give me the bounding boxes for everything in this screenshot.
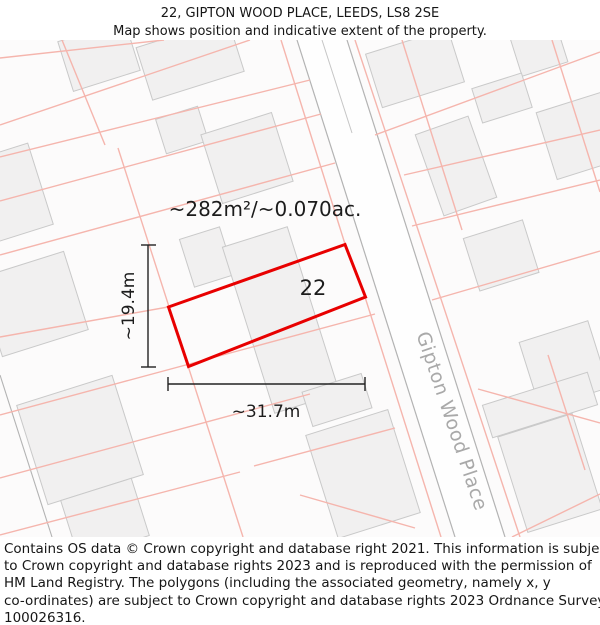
map-canvas: ~282m²/~0.070ac. 22 ~19.4m ~31.7m Gipton…	[0, 40, 600, 537]
copyright-line: to Crown copyright and database rights 2…	[4, 558, 600, 575]
height-dimension-label: ~19.4m	[119, 272, 139, 341]
copyright-line: Contains OS data © Crown copyright and d…	[4, 541, 600, 558]
map-svg: ~282m²/~0.070ac. 22 ~19.4m ~31.7m Gipton…	[0, 40, 600, 537]
property-map-page: 22, GIPTON WOOD PLACE, LEEDS, LS8 2SE Ma…	[0, 0, 600, 625]
copyright-line: HM Land Registry. The polygons (includin…	[4, 575, 600, 592]
area-label: ~282m²/~0.070ac.	[169, 197, 362, 221]
plot-number-label: 22	[300, 276, 327, 300]
map-title-block: 22, GIPTON WOOD PLACE, LEEDS, LS8 2SE Ma…	[0, 0, 600, 40]
page-title: 22, GIPTON WOOD PLACE, LEEDS, LS8 2SE	[0, 5, 600, 23]
copyright-line: 100026316.	[4, 610, 600, 625]
copyright-notice: Contains OS data © Crown copyright and d…	[0, 537, 600, 625]
copyright-line: co-ordinates) are subject to Crown copyr…	[4, 593, 600, 610]
width-dimension-label: ~31.7m	[232, 402, 301, 422]
page-subtitle: Map shows position and indicative extent…	[0, 23, 600, 41]
